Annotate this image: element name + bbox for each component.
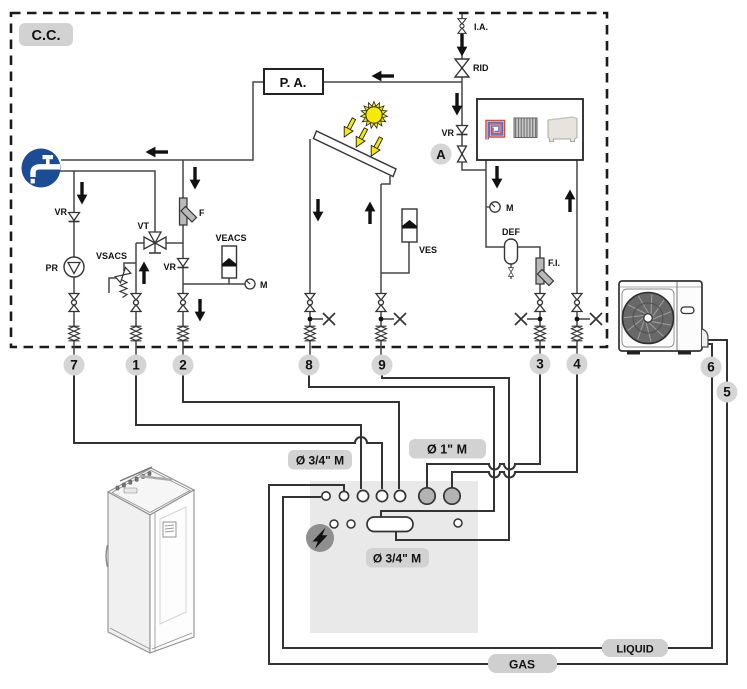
svg-text:C.C.: C.C.: [32, 28, 61, 44]
svg-text:1: 1: [132, 358, 140, 373]
svg-text:VR: VR: [54, 207, 67, 217]
svg-text:Ø 3/4" M: Ø 3/4" M: [296, 454, 344, 468]
svg-text:8: 8: [305, 358, 313, 373]
svg-text:P. A.: P. A.: [280, 75, 307, 90]
svg-text:VR: VR: [163, 262, 176, 272]
svg-text:RID: RID: [473, 63, 489, 73]
svg-text:Ø 1" M: Ø 1" M: [427, 443, 467, 457]
svg-text:VES: VES: [419, 245, 437, 255]
svg-text:PR: PR: [45, 263, 58, 273]
svg-text:F.I.: F.I.: [548, 258, 560, 268]
svg-text:6: 6: [707, 360, 715, 375]
svg-text:M: M: [260, 280, 268, 290]
svg-text:DEF: DEF: [502, 227, 521, 237]
svg-text:VSACS: VSACS: [96, 251, 127, 261]
svg-text:3: 3: [536, 357, 544, 372]
svg-text:A: A: [436, 147, 446, 162]
svg-text:F: F: [199, 208, 205, 218]
svg-text:VT: VT: [137, 221, 149, 231]
svg-text:2: 2: [179, 358, 187, 373]
svg-text:LIQUID: LIQUID: [616, 644, 653, 656]
svg-text:VEACS: VEACS: [215, 233, 246, 243]
svg-text:4: 4: [573, 357, 581, 372]
svg-text:9: 9: [378, 358, 386, 373]
svg-text:5: 5: [723, 385, 731, 400]
svg-text:VR: VR: [441, 128, 454, 138]
svg-text:Ø 3/4" M: Ø 3/4" M: [373, 552, 421, 566]
svg-text:M: M: [506, 203, 514, 213]
svg-text:GAS: GAS: [509, 658, 535, 672]
svg-text:7: 7: [70, 358, 78, 373]
svg-text:I.A.: I.A.: [474, 22, 488, 32]
